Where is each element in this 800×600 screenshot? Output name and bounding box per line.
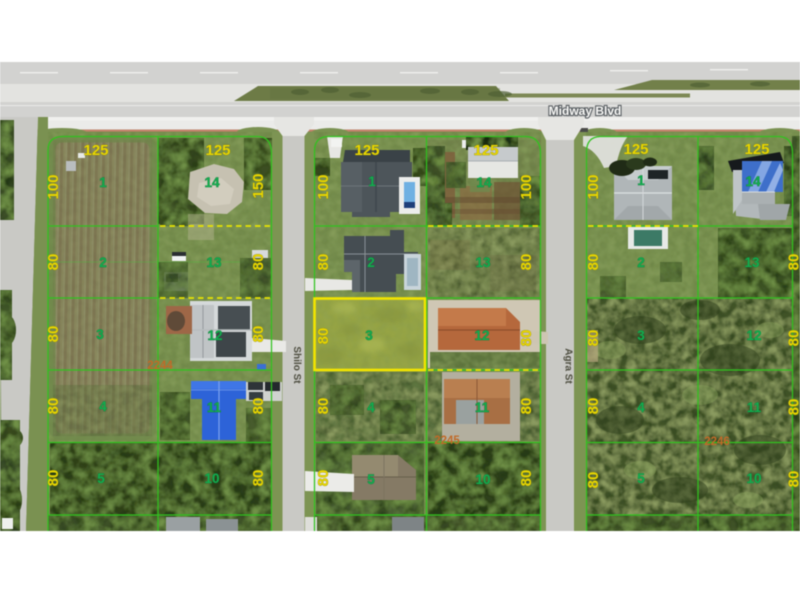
svg-text:80: 80 bbox=[45, 326, 62, 343]
svg-text:2: 2 bbox=[367, 255, 375, 270]
svg-text:14: 14 bbox=[476, 175, 492, 190]
svg-text:80: 80 bbox=[45, 254, 62, 271]
svg-text:Agra St: Agra St bbox=[563, 348, 574, 384]
svg-text:125: 125 bbox=[473, 142, 498, 159]
svg-text:3: 3 bbox=[96, 327, 104, 342]
svg-text:13: 13 bbox=[744, 255, 760, 270]
svg-text:125: 125 bbox=[83, 142, 108, 159]
svg-text:125: 125 bbox=[744, 141, 769, 158]
svg-text:80: 80 bbox=[518, 254, 535, 271]
svg-text:3: 3 bbox=[637, 328, 645, 343]
svg-text:12: 12 bbox=[746, 328, 761, 343]
svg-text:80: 80 bbox=[315, 470, 332, 487]
svg-text:80: 80 bbox=[786, 399, 800, 416]
svg-text:13: 13 bbox=[475, 255, 491, 270]
svg-text:80: 80 bbox=[315, 328, 332, 345]
svg-text:10: 10 bbox=[475, 472, 490, 487]
svg-text:4: 4 bbox=[99, 399, 107, 414]
svg-text:80: 80 bbox=[585, 254, 602, 271]
svg-text:100: 100 bbox=[315, 174, 332, 199]
svg-text:1: 1 bbox=[637, 173, 645, 188]
svg-text:100: 100 bbox=[518, 174, 535, 199]
svg-text:2: 2 bbox=[99, 255, 107, 270]
svg-text:12: 12 bbox=[474, 328, 489, 343]
svg-text:Midway Blvd: Midway Blvd bbox=[549, 104, 622, 118]
svg-text:1: 1 bbox=[99, 175, 107, 190]
svg-text:125: 125 bbox=[205, 142, 230, 159]
svg-text:100: 100 bbox=[45, 174, 62, 199]
svg-text:4: 4 bbox=[367, 400, 375, 415]
svg-text:11: 11 bbox=[747, 400, 762, 415]
svg-text:80: 80 bbox=[585, 330, 602, 347]
svg-text:80: 80 bbox=[786, 471, 800, 488]
svg-text:2245: 2245 bbox=[434, 435, 460, 447]
svg-text:12: 12 bbox=[207, 328, 222, 343]
svg-text:11: 11 bbox=[207, 400, 222, 415]
svg-text:100: 100 bbox=[585, 174, 602, 199]
svg-text:125: 125 bbox=[623, 141, 648, 158]
svg-text:1: 1 bbox=[368, 174, 376, 189]
svg-text:80: 80 bbox=[786, 254, 800, 271]
svg-text:80: 80 bbox=[250, 470, 267, 487]
svg-text:2: 2 bbox=[637, 255, 645, 270]
svg-text:80: 80 bbox=[315, 254, 332, 271]
svg-text:125: 125 bbox=[354, 142, 379, 159]
svg-text:80: 80 bbox=[518, 330, 535, 347]
svg-text:80: 80 bbox=[250, 398, 267, 415]
svg-text:14: 14 bbox=[745, 174, 761, 189]
svg-text:80: 80 bbox=[45, 398, 62, 415]
svg-text:14: 14 bbox=[204, 175, 220, 190]
svg-text:80: 80 bbox=[250, 326, 267, 343]
svg-text:2244: 2244 bbox=[147, 360, 173, 372]
svg-text:10: 10 bbox=[204, 471, 219, 486]
svg-text:5: 5 bbox=[637, 471, 645, 486]
svg-text:80: 80 bbox=[45, 470, 62, 487]
svg-text:80: 80 bbox=[315, 398, 332, 415]
svg-text:3: 3 bbox=[365, 328, 373, 343]
svg-text:13: 13 bbox=[206, 255, 222, 270]
svg-text:11: 11 bbox=[475, 400, 490, 415]
svg-text:150: 150 bbox=[250, 173, 267, 198]
svg-text:Shilo St: Shilo St bbox=[291, 346, 302, 384]
svg-text:2246: 2246 bbox=[704, 436, 730, 448]
svg-text:80: 80 bbox=[585, 472, 602, 489]
svg-text:80: 80 bbox=[518, 398, 535, 415]
svg-text:10: 10 bbox=[746, 471, 761, 486]
svg-text:80: 80 bbox=[250, 254, 267, 271]
svg-text:80: 80 bbox=[786, 330, 800, 347]
svg-text:4: 4 bbox=[637, 400, 645, 415]
svg-text:5: 5 bbox=[367, 472, 375, 487]
svg-text:80: 80 bbox=[518, 470, 535, 487]
svg-text:80: 80 bbox=[585, 398, 602, 415]
svg-text:5: 5 bbox=[97, 471, 105, 486]
